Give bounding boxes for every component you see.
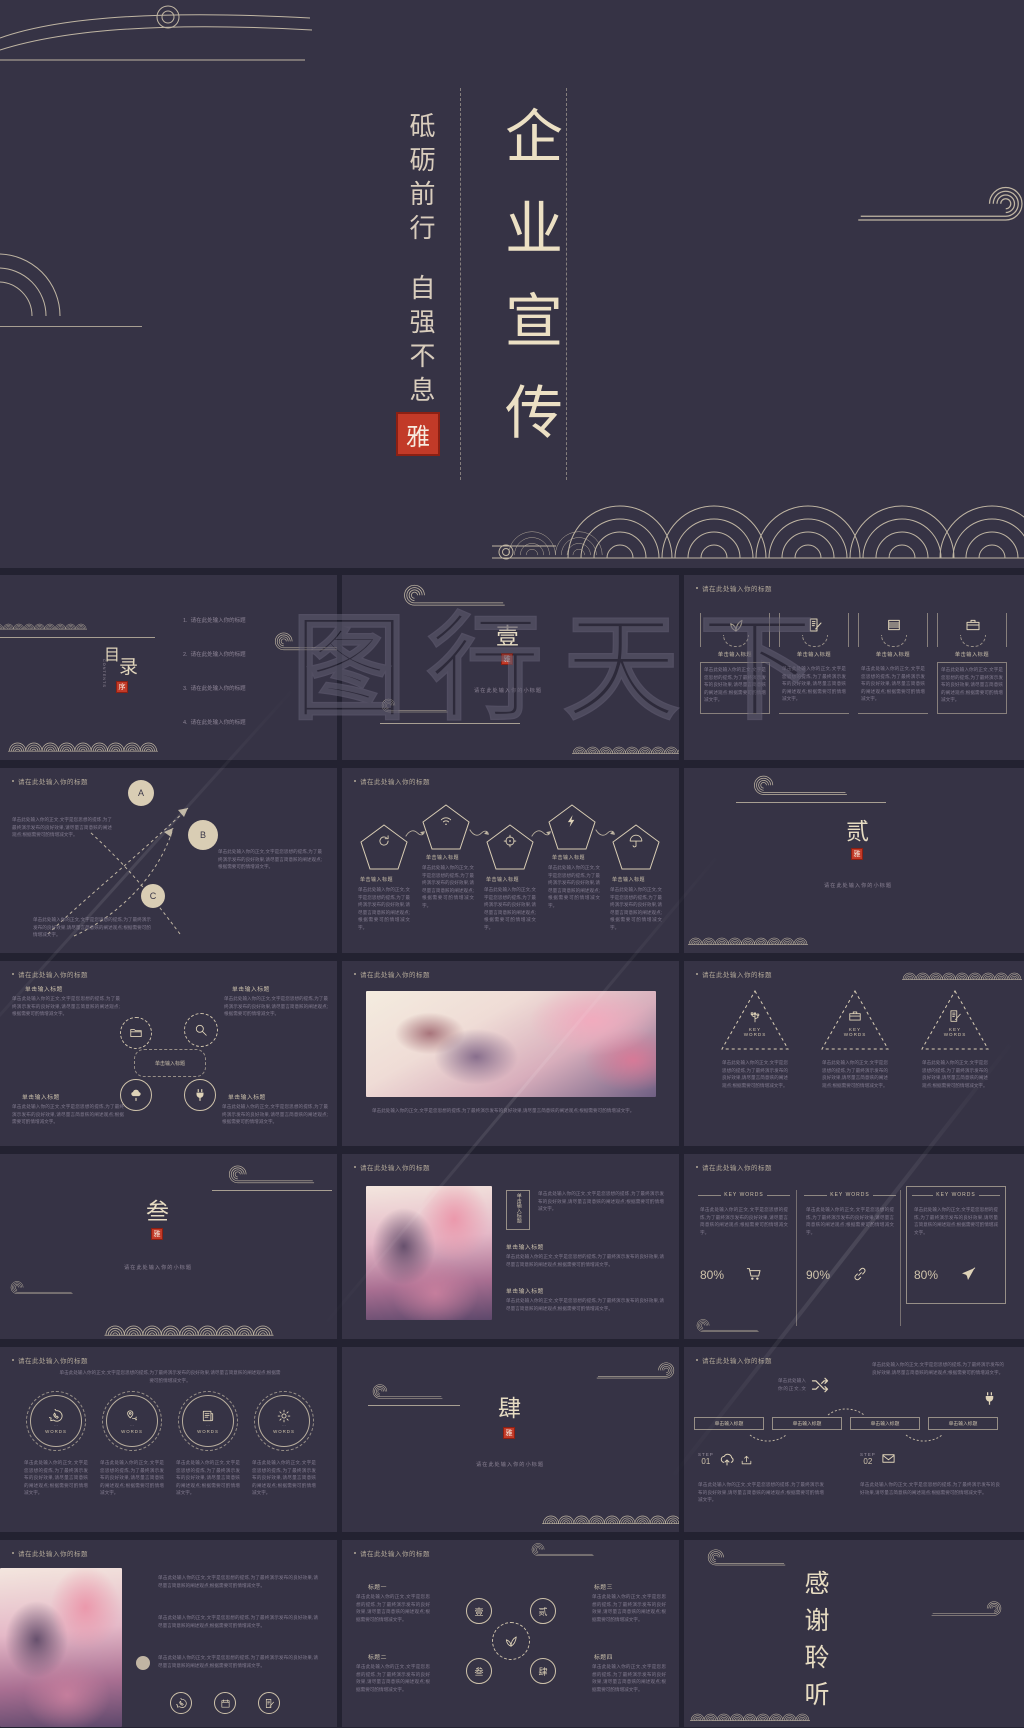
item-title: 单击输入标题	[506, 1242, 544, 1251]
dashed-arc	[881, 635, 907, 647]
item-title: 单击输入标题	[228, 1092, 266, 1101]
dashed-connector	[748, 1433, 788, 1443]
keywords-label: KEY WORDS	[740, 1027, 770, 1037]
words-label: WORDS	[121, 1429, 143, 1434]
lightning-icon	[565, 814, 579, 828]
pentagon-shape	[548, 804, 596, 850]
divider-line	[0, 326, 142, 327]
hub-center-label: 单击输入标题	[155, 1060, 185, 1067]
flow-node: 贰	[530, 1598, 556, 1624]
body-text: 单击此处输入你的正文,文字是您思想的提炼,为了最终演示发布的良好效果,请尽量言简…	[358, 886, 410, 938]
slide-title: 请在此处输入你的标题	[12, 1355, 88, 1365]
feature-column: 单击输入标题 单击此处输入你的正文,文字是您思想的提炼,为了最终演示发布的良好效…	[700, 613, 770, 706]
thumb-section-four-slide[interactable]: 肆 雅 请在此处输入你的小标题	[342, 1347, 679, 1532]
hub-center-label-box: 单击输入标题	[134, 1049, 206, 1077]
toc-item: 3. 请在此处输入你的标题	[183, 684, 246, 692]
words-circle-inner: ··· WORDS	[106, 1395, 158, 1447]
keywords-label: KEY WORDS	[830, 1192, 869, 1198]
step-number: 01	[698, 1457, 714, 1466]
slide-title: 请在此处输入你的标题	[354, 1548, 430, 1558]
thumb-four-features-slide[interactable]: 请在此处输入你的标题 单击输入标题 单击此处输入你的正文,文字是您思想的提炼,为…	[684, 575, 1024, 760]
body-text: 单击此处输入你的正文,文字是您思想的提炼,为了最终演示发布的良好效果,请尽量言简…	[610, 886, 662, 938]
vertical-label-box: 单击输入标题	[506, 1190, 530, 1230]
cloud-curl-ornament	[380, 697, 450, 715]
icon-circle	[258, 1692, 280, 1714]
dot-ornament	[136, 1656, 150, 1670]
keywords-header: KEY WORDS	[698, 1192, 790, 1198]
toc-item-text: 请在此处输入你的标题	[191, 618, 246, 624]
section-number-char: 贰	[846, 812, 869, 846]
hub-circle	[120, 1079, 152, 1111]
toc-emblem: 目 CONTENTS 录 序	[102, 641, 152, 703]
cloud-curl-ornament	[692, 1318, 764, 1334]
section-seal: 雅	[151, 1228, 163, 1240]
cloud-upload-icon	[719, 1451, 735, 1467]
divider-line	[212, 1190, 332, 1191]
cloud-band-ornament	[492, 440, 1024, 566]
body-text: 单击此处输入你的正文,文字是您思想的提炼,为了最终演示发布的良好效果,请尽量言简…	[372, 1107, 652, 1133]
item-title: 单击输入标题	[25, 984, 63, 993]
watercolor-image	[366, 991, 656, 1097]
triangle-shape: KEY WORDS	[820, 989, 890, 1051]
section-number-char: 壹	[496, 617, 519, 651]
cloud-band-ornament	[542, 1505, 679, 1527]
words-circle: ··· WORDS	[178, 1391, 238, 1451]
document-pen-icon	[948, 1009, 962, 1023]
sync-icon	[377, 834, 391, 848]
pentagon-shape	[422, 804, 470, 850]
flow-label: 标题一	[368, 1582, 387, 1591]
cloud-curl-ornament	[380, 583, 530, 609]
cloud-curl-ornament	[580, 1361, 679, 1381]
calendar-icon	[220, 1698, 231, 1709]
thumb-image-bullets-slide[interactable]: 请在此处输入你的标题 单击此处输入你的正文,文字是您思想的提炼,为了最终演示发布…	[0, 1540, 337, 1727]
slide-title: 请在此处输入你的标题	[354, 1162, 430, 1172]
toc-seal: 序	[116, 681, 128, 693]
body-text: 单击此处输入你的正文,文字是您思想的提炼,为了最终演示发布的良好效果,请尽量言简…	[222, 1103, 328, 1137]
watercolor-image	[0, 1568, 122, 1727]
divider-line	[368, 1405, 460, 1406]
slide-title-text: 请在此处输入你的标题	[702, 1162, 772, 1172]
slide-title: 请在此处输入你的标题	[696, 1162, 772, 1172]
body-text: 单击此处输入你的正文,文字是您思想的提炼,为了最终演示发布的良好效果,请尽量言简…	[176, 1459, 240, 1515]
cloud-curl-ornament	[852, 182, 1024, 228]
slide-title: 请在此处输入你的标题	[696, 969, 772, 979]
step-block: STEP 02	[860, 1451, 896, 1466]
mini-text: 单击此处输入你的正文,文字是您思想的提炼。	[778, 1377, 806, 1393]
label-circle-b: B	[188, 820, 218, 850]
document-icon	[264, 1698, 275, 1709]
upload-tray-icon	[740, 1453, 753, 1466]
pentagon-shape	[360, 824, 408, 870]
body-text: 单击此处输入你的正文,文字是您思想的提炼,为了最终演示发布的良好效果,请尽量言简…	[218, 848, 322, 892]
step-number-block: STEP 02	[860, 1452, 876, 1466]
slide-title-text: 请在此处输入你的标题	[18, 969, 88, 979]
body-text: 单击此处输入你的正文,文字是您思想的提炼,为了最终演示发布的良好效果,请尽量言简…	[506, 1297, 664, 1321]
body-text: 单击此处输入你的正文,文字是您思想的提炼,为了最终演示发布的良好效果,请尽量言简…	[722, 1059, 788, 1119]
cloud-band-ornament	[688, 928, 808, 948]
divider-line	[380, 723, 520, 724]
wifi-icon	[439, 814, 453, 828]
section-seal: 雅	[501, 653, 513, 665]
step-block: STEP 01	[698, 1451, 753, 1467]
triangle-shape: KEY WORDS	[920, 989, 990, 1051]
item-title: 单击输入标题	[552, 854, 585, 861]
flow-label: 标题四	[594, 1652, 613, 1661]
cloud-arc-ornament	[0, 4, 335, 64]
section-subtitle: 请在此处输入你的小标题	[452, 687, 564, 694]
words-label: WORDS	[273, 1429, 295, 1434]
step-label: STEP	[860, 1452, 876, 1457]
briefcase-icon	[848, 1009, 862, 1023]
cloud-band-ornament	[8, 733, 158, 753]
section-number-char: 叁	[146, 1192, 169, 1226]
words-label: WORDS	[45, 1429, 67, 1434]
section-seal: 雅	[503, 1427, 515, 1439]
intro-text: 单击此处输入你的正文,文字是您思想的提炼,为了最终演示发布的良好效果,请尽量言简…	[58, 1369, 282, 1385]
watercolor-image	[366, 1186, 492, 1320]
icon-bracket	[937, 613, 1007, 647]
step-label-box: 单击输入标题	[694, 1417, 764, 1430]
usb-icon	[748, 1009, 762, 1023]
body-text: 单击此处输入你的正文,文字是您思想的提炼,为了最终演示发布的良好效果,请尽量言简…	[922, 1059, 988, 1119]
label-circle-a: A	[128, 780, 154, 806]
body-text: 单击此处输入你的正文,文字是您思想的提炼,为了最终演示发布的良好效果,请尽量言简…	[937, 662, 1007, 714]
hub-circle	[184, 1079, 216, 1111]
percent-value: 80%	[914, 1268, 938, 1282]
thumb-section-one-slide[interactable]: 壹 雅 请在此处输入你的小标题	[342, 575, 679, 760]
body-text: 单击此处输入你的正文,文字是您思想的提炼,为了最终演示发布的良好效果,请尽量言简…	[12, 1103, 124, 1137]
slide-title: 请在此处输入你的标题	[354, 776, 430, 786]
item-title: 单击输入标题	[858, 651, 928, 658]
item-title: 单击输入标题	[871, 1420, 900, 1427]
divider-line	[0, 637, 155, 638]
column-divider	[796, 1190, 797, 1326]
thumb-banner-image-slide[interactable]: 请在此处输入你的标题 单击此处输入你的正文,文字是您思想的提炼,为了最终演示发布…	[342, 961, 679, 1146]
flow-label: 标题二	[368, 1652, 387, 1661]
motto-top: 砥砺前行	[406, 112, 435, 248]
section-subtitle: 请在此处输入你的小标题	[802, 882, 914, 889]
thumb-flow-circle-slide[interactable]: 请在此处输入你的标题 标题一 单击此处输入你的正文,文字是您思想的提炼,为了最终…	[342, 1540, 679, 1727]
window-blinds-icon	[886, 617, 902, 633]
toc-item-text: 请在此处输入你的标题	[191, 652, 246, 658]
triangle-shape: KEY WORDS	[720, 989, 790, 1051]
body-text: 单击此处输入你的正文,文字是您思想的提炼,为了最终演示发布的良好效果,请尽量言简…	[872, 1361, 1004, 1387]
pentagon-shape	[486, 824, 534, 870]
cloud-curl-ornament	[518, 1542, 608, 1558]
curve-arrow	[404, 826, 426, 840]
thumb-percent-keywords-slide[interactable]: 请在此处输入你的标题 KEY WORDS 单击此处输入你的正文,文字是您思想的提…	[684, 1154, 1024, 1339]
slide-title: 请在此处输入你的标题	[696, 1355, 772, 1365]
icon-circle	[214, 1692, 236, 1714]
body-text: 单击此处输入你的正文,文字是您思想的提炼,为了最终演示发布的良好效果,请尽量言简…	[100, 1459, 164, 1515]
target-icon	[503, 834, 517, 848]
toc-number: 4.	[183, 720, 188, 726]
body-text: 单击此处输入你的正文,文字是您思想的提炼,为了最终演示发布的良好效果,请尽量言简…	[158, 1574, 318, 1604]
thumb-steps-slide[interactable]: 请在此处输入你的标题 单击此处输入你的正文,文字是您思想的提炼,为了最终演示发布…	[684, 1347, 1024, 1532]
words-label: WORDS	[197, 1429, 219, 1434]
body-text: 单击此处输入你的正文,文字是您思想的提炼,为了最终演示发布的良好效果,请尽量言简…	[158, 1614, 318, 1644]
item-title: 单击输入标题	[949, 1420, 978, 1427]
keywords-label: KEY WORDS	[724, 1192, 763, 1198]
curve-arrow	[530, 826, 552, 840]
plug-icon	[193, 1088, 207, 1102]
cover-title: 企业宣传	[486, 106, 570, 474]
keywords-label: KEY WORDS	[940, 1027, 970, 1037]
leaf-icon	[728, 617, 744, 633]
body-text: 单击此处输入你的正文,文字是您思想的提炼,为了最终演示发布的良好效果,请尽量言简…	[12, 995, 120, 1027]
cloud-curl-ornament	[692, 1548, 802, 1568]
item-title: 单击输入标题	[426, 854, 459, 861]
gear-icon	[277, 1409, 291, 1423]
shuffle-icon	[810, 1375, 830, 1395]
thumb-words-circles-slide[interactable]: 请在此处输入你的标题 单击此处输入你的正文,文字是您思想的提炼,为了最终演示发布…	[0, 1347, 337, 1532]
slide-title-text: 请在此处输入你的标题	[702, 969, 772, 979]
percent-value: 80%	[700, 1268, 724, 1282]
icon-circle	[170, 1692, 192, 1714]
envelope-icon	[881, 1451, 896, 1466]
leaf-icon	[504, 1634, 518, 1648]
body-text: 单击此处输入你的正文,文字是您思想的提炼,为了最终演示发布的良好效果,请尽量言简…	[779, 662, 849, 714]
item-title: 单击输入标题	[779, 651, 849, 658]
thumb-section-three-slide[interactable]: 叁 雅 请在此处输入你的小标题	[0, 1154, 337, 1339]
body-text: 单击此处输入你的正文,文字是您思想的提炼,为了最终演示发布的良好效果,请尽量言简…	[356, 1663, 430, 1697]
cloud-curl-ornament	[736, 774, 866, 798]
item-title: 单击输入标题	[22, 1092, 60, 1101]
body-text: 单击此处输入你的正文,文字是您思想的提炼,为了最终演示发布的良好效果,请尽量言简…	[592, 1593, 666, 1627]
words-circle-inner: ··· WORDS	[182, 1395, 234, 1447]
slide-title: 请在此处输入你的标题	[12, 969, 88, 979]
slide-title-text: 请在此处输入你的标题	[702, 583, 772, 593]
dashed-arc	[960, 635, 986, 647]
keywords-header: KEY WORDS	[912, 1192, 1000, 1198]
body-text: 单击此处输入你的正文,文字是您思想的提炼,为了最终演示发布的良好效果,请尽量言简…	[698, 1481, 824, 1515]
section-number-char: 肆	[498, 1389, 521, 1423]
thumb-triangle-keywords-slide[interactable]: 请在此处输入你的标题 KEY WORDS KEY WORDS KEY WORDS…	[684, 961, 1024, 1146]
label-circle-c: C	[141, 884, 165, 908]
keywords-label: KEY WORDS	[936, 1192, 975, 1198]
toc-number: 2.	[183, 652, 188, 658]
body-text: 单击此处输入你的正文,文字是您思想的提炼,为了最终演示发布的良好效果,请尽量言简…	[484, 886, 536, 938]
flow-node: 肆	[530, 1658, 556, 1684]
cover-slide: 砥砺前行自强不息 雅 企业宣传	[0, 0, 1024, 568]
tree-icon	[129, 1088, 143, 1102]
cloud-curl-ornament	[212, 1164, 332, 1186]
cloud-curl-ornament	[916, 1600, 1016, 1618]
slide-title: 请在此处输入你的标题	[354, 969, 430, 979]
item-title: 单击输入标题	[506, 1286, 544, 1295]
cloud-band-ornament	[690, 1704, 810, 1724]
slide-title: 请在此处输入你的标题	[696, 583, 772, 593]
search-icon	[194, 1023, 208, 1037]
slide-title-text: 请在此处输入你的标题	[360, 969, 430, 979]
cart-icon	[746, 1266, 762, 1282]
feature-column: 单击输入标题 单击此处输入你的正文,文字是您思想的提炼,为了最终演示发布的良好效…	[779, 613, 849, 706]
thumb-pentagon-process-slide[interactable]: 请在此处输入你的标题 单击输入标题 单击输入标题 单击输入标题 单击输入标题 单	[342, 768, 679, 953]
cloud-band-ornament	[0, 613, 87, 635]
words-circle-inner: ··· WORDS	[258, 1395, 310, 1447]
cloud-arc-ornament	[0, 232, 62, 318]
flow-label: 标题三	[594, 1582, 613, 1591]
briefcase-icon	[965, 617, 981, 633]
dots: ···	[206, 1424, 210, 1428]
template-preview-board: 砥砺前行自强不息 雅 企业宣传 目 CONTENTS 录 序 1. 请在此处输入…	[0, 0, 1024, 1728]
feature-column: 单击输入标题 单击此处输入你的正文,文字是您思想的提炼,为了最终演示发布的良好效…	[858, 613, 928, 706]
toc-number: 1.	[183, 618, 188, 624]
icon-bracket	[858, 613, 928, 647]
cover-seal: 雅	[396, 412, 440, 456]
thumb-image-text-slide[interactable]: 请在此处输入你的标题 单击输入标题 单击此处输入你的正文,文字是您思想的提炼,为…	[342, 1154, 679, 1339]
toc-number: 3.	[183, 686, 188, 692]
body-text: 单击此处输入你的正文,文字是您思想的提炼,为了最终演示发布的良好效果,请尽量言简…	[356, 1593, 430, 1627]
toc-item: 2. 请在此处输入你的标题	[183, 650, 246, 658]
step-label-box: 单击输入标题	[928, 1417, 998, 1430]
step-label-box: 单击输入标题	[850, 1417, 920, 1430]
words-circle: ··· WORDS	[102, 1391, 162, 1451]
body-text: 单击此处输入你的正文,文字是您思想的提炼,为了最终演示发布的良好效果,请尽量言简…	[506, 1253, 664, 1277]
slide-title-text: 请在此处输入你的标题	[18, 1355, 88, 1365]
item-title: 单击输入标题	[715, 1420, 744, 1427]
body-text: 单击此处输入你的正文,文字是您思想的提炼,为了最终演示发布的良好效果,请尽量言简…	[158, 1654, 318, 1684]
icon-bracket	[779, 613, 849, 647]
item-title: 单击输入标题	[612, 876, 645, 883]
flow-center-circle	[492, 1622, 530, 1660]
curve-arrow	[594, 826, 616, 840]
words-circle-inner: ··· WORDS	[30, 1395, 82, 1447]
item-title: 单击输入标题	[232, 984, 270, 993]
flow-node: 叁	[466, 1658, 492, 1684]
slide-title-text: 请在此处输入你的标题	[702, 1355, 772, 1365]
step-number: 02	[860, 1457, 876, 1466]
dashed-arc	[723, 635, 749, 647]
toc-item-text: 请在此处输入你的标题	[191, 686, 246, 692]
item-title: 单击输入标题	[937, 651, 1007, 658]
body-text: 单击此处输入你的正文,文字是您思想的提炼,为了最终演示发布的良好效果,请尽量言简…	[224, 995, 328, 1027]
thumb-abc-arrows-slide[interactable]: 请在此处输入你的标题 A B C 单击此处输入你的正文,文字是您思想的提炼,为了…	[0, 768, 337, 953]
body-text: 单击此处输入你的正文,文字是您思想的提炼,为了最终演示发布的良好效果,请尽量言简…	[914, 1206, 998, 1258]
plug-icon	[982, 1391, 997, 1406]
cloud-band-ornament	[902, 963, 1022, 983]
slide-title: 请在此处输入你的标题	[12, 1548, 88, 1558]
motto-bottom: 自强不息	[406, 274, 435, 410]
toc-char-bottom: 录	[119, 652, 138, 679]
cloud-band-ornament	[104, 1316, 274, 1336]
dashed-guide	[460, 88, 461, 480]
body-text: 单击此处输入你的正文,文字是您思想的提炼,为了最终演示发布的良好效果,请尽量言简…	[422, 864, 474, 938]
icon-bracket	[700, 613, 770, 647]
toc-item-text: 请在此处输入你的标题	[191, 720, 246, 726]
body-text: 单击此处输入你的正文,文字是您思想的提炼,为了最终演示发布的良好效果,请尽量言简…	[24, 1459, 88, 1515]
hub-circle	[120, 1017, 152, 1049]
item-title: 单击输入标题	[360, 876, 393, 883]
dots: ···	[54, 1424, 58, 1428]
section-subtitle: 请在此处输入你的小标题	[454, 1461, 566, 1468]
percent-value: 90%	[806, 1268, 830, 1282]
slide-title-text: 请在此处输入你的标题	[360, 1548, 430, 1558]
slide-title-text: 请在此处输入你的标题	[18, 1548, 88, 1558]
dashed-connector	[904, 1433, 944, 1443]
umbrella-icon	[629, 834, 643, 848]
body-text: 单击此处输入你的正文,文字是您思想的提炼,为了最终演示发布的良好效果,请尽量言简…	[33, 916, 151, 946]
body-text: 单击此处输入你的正文,文字是您思想的提炼,为了最终演示发布的良好效果,请尽量言简…	[538, 1190, 664, 1230]
words-circle: ··· WORDS	[26, 1391, 86, 1451]
document-pen-icon	[807, 617, 823, 633]
item-title: 单击输入标题	[486, 876, 519, 883]
slide-title-text: 请在此处输入你的标题	[360, 776, 430, 786]
cloud-band-ornament	[572, 737, 679, 757]
dots: ···	[282, 1424, 286, 1428]
body-text: 单击此处输入你的正文,文字是您思想的提炼,为了最终演示发布的良好效果,请尽量言简…	[858, 662, 928, 714]
item-title: 单击输入标题	[793, 1420, 822, 1427]
thumb-section-two-slide[interactable]: 贰 雅 请在此处输入你的小标题	[684, 768, 1024, 953]
newspaper-icon	[201, 1409, 215, 1423]
thumb-hub-diagram-slide[interactable]: 请在此处输入你的标题 单击输入标题 单击此处输入你的正文,文字是您思想的提炼,为…	[0, 961, 337, 1146]
toc-subtitle: CONTENTS	[102, 659, 106, 688]
body-text: 单击此处输入你的正文,文字是您思想的提炼,为了最终演示发布的良好效果,请尽量言简…	[592, 1663, 666, 1697]
body-text: 单击此处输入你的正文,文字是您思想的提炼,为了最终演示发布的良好效果,请尽量言简…	[806, 1206, 894, 1258]
pentagon-shape	[612, 824, 660, 870]
dashed-arc	[802, 635, 828, 647]
thumb-toc-slide[interactable]: 目 CONTENTS 录 序 1. 请在此处输入你的标题 2. 请在此处输入你的…	[0, 575, 337, 760]
body-text: 单击此处输入你的正文,文字是您思想的提炼,为了最终演示发布的良好效果,请尽量言简…	[822, 1059, 888, 1119]
words-circle: ··· WORDS	[254, 1391, 314, 1451]
slide-title-text: 请在此处输入你的标题	[360, 1162, 430, 1172]
body-text: 单击此处输入你的正文,文字是您思想的提炼,为了最终演示发布的良好效果,请尽量言简…	[548, 864, 600, 938]
thumb-thanks-slide[interactable]: 感谢聆听	[684, 1540, 1024, 1727]
item-title: 单击输入标题	[700, 651, 770, 658]
section-seal: 雅	[851, 848, 863, 860]
chat-phone-icon	[176, 1698, 187, 1709]
step-number-block: STEP 01	[698, 1452, 714, 1466]
keywords-label: KEY WORDS	[840, 1027, 870, 1037]
item-title: 单击输入标题	[513, 1193, 523, 1227]
location-pin-icon	[125, 1409, 139, 1423]
folder-icon	[129, 1026, 143, 1040]
body-text: 单击此处输入你的正文,文字是您思想的提炼,为了最终演示发布的良好效果,请尽量言简…	[700, 1206, 788, 1258]
hub-circle	[184, 1013, 218, 1047]
dots: ···	[130, 1424, 134, 1428]
body-text: 单击此处输入你的正文,文字是您思想的提炼,为了最终演示发布的良好效果,请尽量言简…	[700, 662, 770, 714]
toc-char-top: 目	[104, 641, 120, 665]
dashed-connector	[826, 1407, 866, 1417]
body-text: 单击此处输入你的正文,文字是您思想的提炼,为了最终演示发布的良好效果,请尽量言简…	[860, 1481, 1000, 1515]
toc-item: 1. 请在此处输入你的标题	[183, 616, 246, 624]
cloud-curl-ornament	[368, 1383, 448, 1401]
thanks-text: 感谢聆听	[796, 1570, 832, 1718]
cloud-curl-ornament	[2, 1280, 82, 1296]
divider-line	[736, 802, 886, 803]
curve-arrow	[468, 826, 490, 840]
cloud-curl-ornament	[258, 631, 337, 653]
flow-node: 壹	[466, 1598, 492, 1624]
toc-item: 4. 请在此处输入你的标题	[183, 718, 246, 726]
chat-phone-icon	[49, 1409, 63, 1423]
body-text: 单击此处输入你的正文,文字是您思想的提炼,为了最终演示发布的良好效果,请尽量言简…	[252, 1459, 316, 1515]
link-icon	[852, 1266, 868, 1282]
cover-motto: 砥砺前行自强不息	[402, 112, 439, 410]
keywords-header: KEY WORDS	[804, 1192, 896, 1198]
step-label-box: 单击输入标题	[772, 1417, 842, 1430]
section-subtitle: 请在此处输入你的小标题	[102, 1264, 214, 1271]
body-text: 单击此处输入你的正文,文字是您思想的提炼,为了最终演示发布的良好效果,请尽量言简…	[12, 816, 112, 852]
paper-plane-icon	[960, 1266, 976, 1282]
feature-column: 单击输入标题 单击此处输入你的正文,文字是您思想的提炼,为了最终演示发布的良好效…	[937, 613, 1007, 706]
column-divider	[900, 1190, 901, 1326]
